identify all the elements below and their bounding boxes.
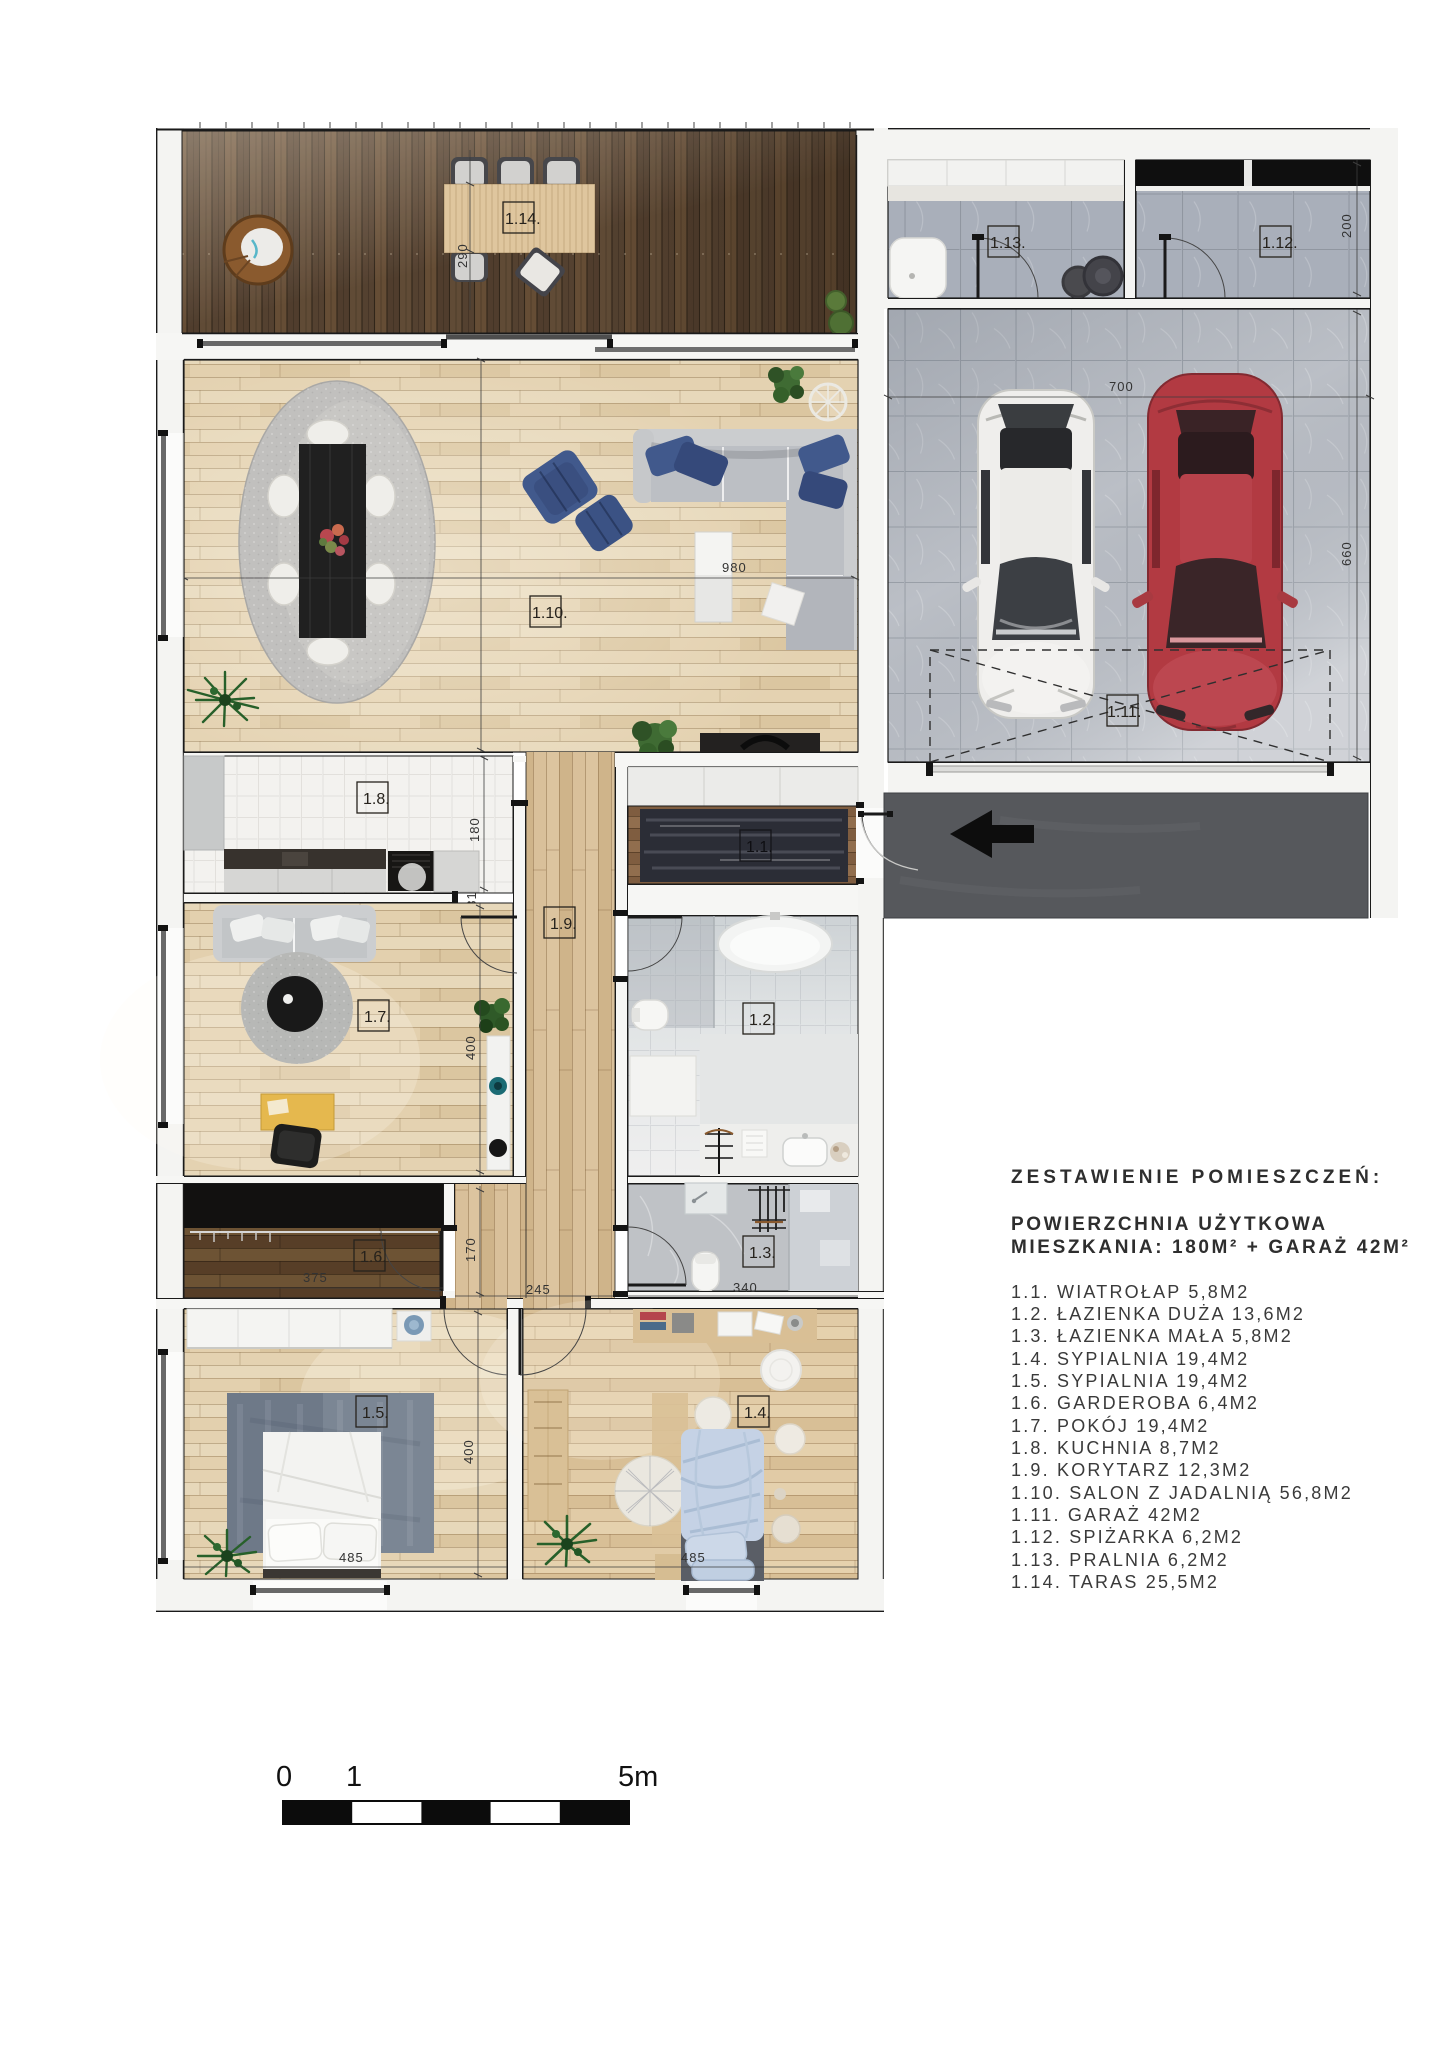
svg-text:1.14.: 1.14. [505,211,541,228]
svg-text:1: 1 [346,1761,362,1793]
svg-text:1.11. GARAŻ 42M2: 1.11. GARAŻ 42M2 [1011,1505,1202,1525]
svg-text:1.4.: 1.4. [744,1405,771,1422]
svg-text:1.6.: 1.6. [360,1249,387,1266]
svg-text:1.7.: 1.7. [364,1009,391,1026]
svg-text:290: 290 [455,243,470,268]
svg-text:1.10. SALON Z JADALNIĄ 56,8M2: 1.10. SALON Z JADALNIĄ 56,8M2 [1011,1483,1353,1503]
svg-text:1.6. GARDEROBA 6,4M2: 1.6. GARDEROBA 6,4M2 [1011,1393,1259,1413]
svg-text:1.4. SYPIALNIA 19,4M2: 1.4. SYPIALNIA 19,4M2 [1011,1349,1249,1369]
svg-text:POWIERZCHNIA UŻYTKOWA: POWIERZCHNIA UŻYTKOWA [1011,1214,1328,1235]
svg-text:1.9. KORYTARZ 12,3M2: 1.9. KORYTARZ 12,3M2 [1011,1460,1251,1480]
svg-text:1.14. TARAS 25,5M2: 1.14. TARAS 25,5M2 [1011,1572,1219,1592]
svg-text:1.13.: 1.13. [990,235,1026,252]
svg-text:340: 340 [733,1280,758,1295]
svg-text:1.12. SPIŻARKA 6,2M2: 1.12. SPIŻARKA 6,2M2 [1011,1527,1243,1547]
svg-text:1.1.: 1.1. [746,839,773,856]
svg-text:1.3. ŁAZIENKA MAŁA 5,8M2: 1.3. ŁAZIENKA MAŁA 5,8M2 [1011,1326,1293,1346]
svg-text:700: 700 [1109,379,1134,394]
svg-text:660: 660 [1339,541,1354,566]
svg-text:1.8.: 1.8. [363,791,390,808]
svg-text:1.10.: 1.10. [532,605,568,622]
svg-text:ZESTAWIENIE POMIESZCZEŃ:: ZESTAWIENIE POMIESZCZEŃ: [1011,1166,1383,1188]
svg-text:1.5. SYPIALNIA 19,4M2: 1.5. SYPIALNIA 19,4M2 [1011,1371,1249,1391]
svg-text:400: 400 [463,1035,478,1060]
svg-text:980: 980 [722,560,747,575]
svg-text:375: 375 [303,1270,328,1285]
svg-text:1.2. ŁAZIENKA DUŻA 13,6M2: 1.2. ŁAZIENKA DUŻA 13,6M2 [1011,1304,1305,1324]
svg-text:485: 485 [681,1550,706,1565]
svg-text:MIESZKANIA: 180M² + GARAŻ 42M²: MIESZKANIA: 180M² + GARAŻ 42M² [1011,1237,1410,1258]
svg-text:5m: 5m [618,1761,658,1793]
svg-text:1.1. WIATROŁAP 5,8M2: 1.1. WIATROŁAP 5,8M2 [1011,1282,1249,1302]
svg-text:1.8. KUCHNIA 8,7M2: 1.8. KUCHNIA 8,7M2 [1011,1438,1221,1458]
svg-text:1.5.: 1.5. [362,1405,389,1422]
svg-text:180: 180 [467,817,482,842]
svg-text:400: 400 [461,1439,476,1464]
svg-text:200: 200 [1339,213,1354,238]
svg-text:485: 485 [339,1550,364,1565]
svg-text:1.2.: 1.2. [749,1012,776,1029]
svg-text:1.7. POKÓJ 19,4M2: 1.7. POKÓJ 19,4M2 [1011,1415,1209,1436]
svg-text:1.13. PRALNIA 6,2M2: 1.13. PRALNIA 6,2M2 [1011,1550,1229,1570]
svg-text:1.9.: 1.9. [550,916,577,933]
svg-text:1.11.: 1.11. [1107,704,1141,721]
svg-text:1.3.: 1.3. [749,1245,776,1262]
svg-text:1.12.: 1.12. [1262,235,1298,252]
svg-text:0: 0 [276,1761,292,1793]
svg-text:170: 170 [463,1237,478,1262]
svg-text:245: 245 [526,1282,551,1297]
